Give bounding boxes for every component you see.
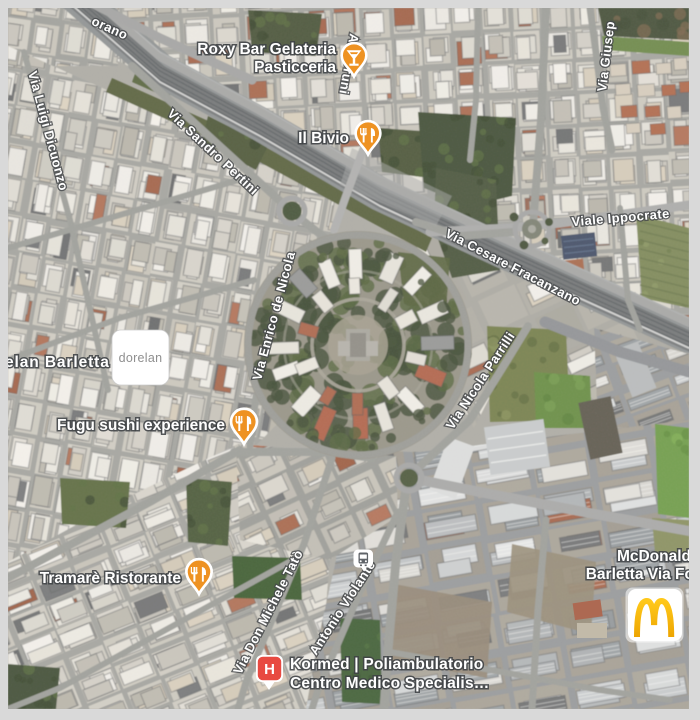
svg-text:Fugu sushi experience: Fugu sushi experience <box>57 417 225 434</box>
svg-text:Roxy Bar Gelateria: Roxy Bar Gelateria <box>197 41 336 58</box>
svg-text:Kormed | Poliambulatorio: Kormed | Poliambulatorio <box>290 656 483 673</box>
svg-text:Barletta Via Fo: Barletta Via Fo <box>586 566 694 583</box>
svg-text:H: H <box>264 661 275 678</box>
svg-text:elan Barletta: elan Barletta <box>5 354 110 371</box>
svg-text:Tramarè Ristorante: Tramarè Ristorante <box>40 570 182 587</box>
svg-text:McDonald: McDonald <box>617 548 691 565</box>
svg-text:Centro Medico Specialis…: Centro Medico Specialis… <box>290 675 489 692</box>
svg-text:Pasticceria: Pasticceria <box>254 59 336 76</box>
svg-text:Il Bivio: Il Bivio <box>298 130 349 147</box>
svg-text:dorelan: dorelan <box>119 351 163 365</box>
